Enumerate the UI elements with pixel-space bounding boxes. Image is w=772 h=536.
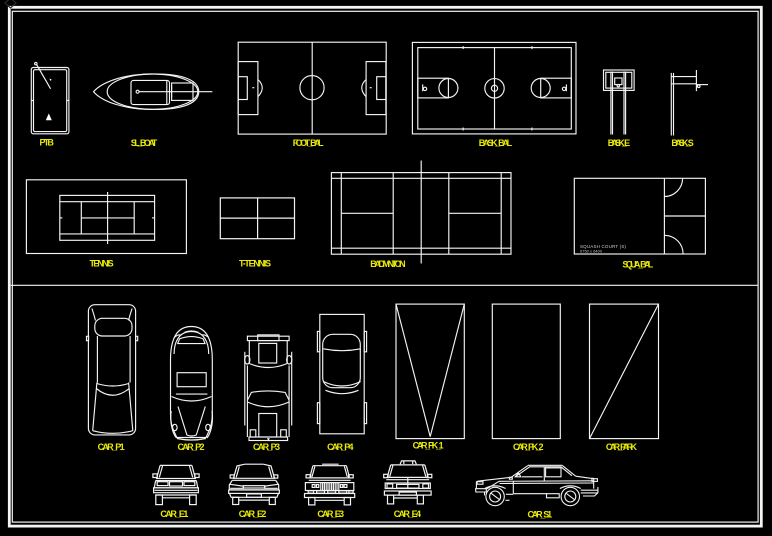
svg-text:SL_BOAT: SL_BOAT (131, 138, 158, 148)
svg-text:PTB: PTB (40, 138, 55, 148)
svg-text:CAR_PK_2: CAR_PK_2 (513, 442, 544, 452)
svg-text:SQUA_BAL: SQUA_BAL (622, 260, 653, 270)
svg-text:CAR_S1: CAR_S1 (528, 509, 553, 519)
svg-text:CAR_E1: CAR_E1 (160, 509, 188, 519)
svg-text:CAR_P4: CAR_P4 (327, 442, 353, 452)
svg-text:BADMINTON: BADMINTON (370, 259, 405, 269)
svg-text:9750 x 6400: 9750 x 6400 (580, 250, 602, 254)
svg-text:CAR_P1: CAR_P1 (98, 442, 125, 452)
svg-text:CAR_E4: CAR_E4 (394, 509, 421, 519)
svg-text:BASK_S: BASK_S (671, 138, 693, 148)
svg-text:CAR_PARK: CAR_PARK (606, 442, 638, 452)
svg-text:CAR_P3: CAR_P3 (253, 442, 280, 452)
svg-text:BASK_E: BASK_E (608, 138, 630, 148)
svg-text:CAR_P2: CAR_P2 (178, 442, 205, 452)
svg-text:T-TENNIS: T-TENNIS (239, 259, 271, 269)
svg-text:BASK_BAL: BASK_BAL (479, 138, 513, 148)
svg-text:SQUASH COURT (S): SQUASH COURT (S) (580, 244, 627, 249)
svg-text:CAR_E2: CAR_E2 (239, 509, 267, 519)
svg-text:TENNIS: TENNIS (90, 259, 114, 269)
svg-text:CAR_E3: CAR_E3 (317, 509, 344, 519)
svg-text:CAR_PK_1: CAR_PK_1 (413, 441, 444, 451)
svg-text:FOOT_BAL: FOOT_BAL (293, 138, 324, 148)
